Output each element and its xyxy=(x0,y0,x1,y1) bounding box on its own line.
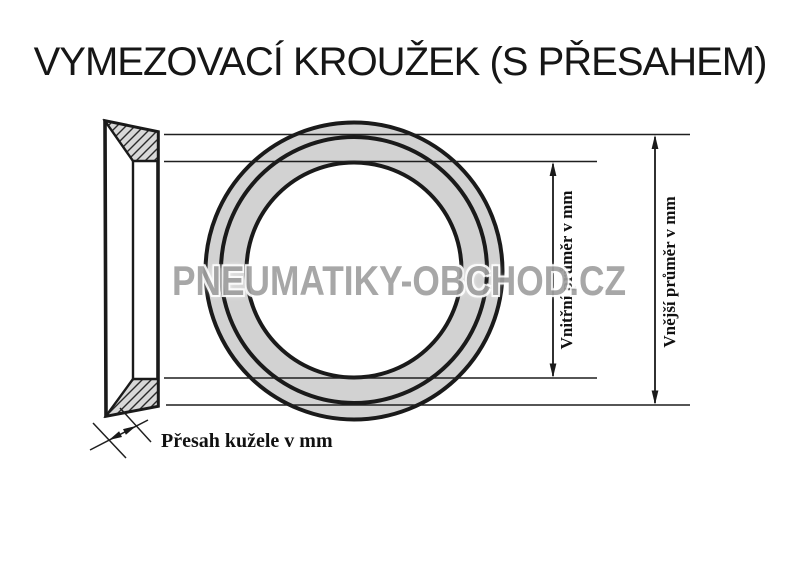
cone-extension-line-upper xyxy=(120,408,151,442)
cone-overlap-label: Přesah kužele v mm xyxy=(161,430,333,453)
arrowhead-down-icon xyxy=(550,364,557,378)
arrowhead-upright-icon xyxy=(123,426,136,435)
page-title: VYMEZOVACÍ KROUŽEK (S PŘESAHEM) xyxy=(0,40,800,84)
outer-diameter-label: Vnější průměr v mm xyxy=(660,196,680,347)
outer-diameter-dimension xyxy=(652,135,659,405)
spacer-ring-diagram: VYMEZOVACÍ KROUŽEK (S PŘESAHEM) Vnitřní … xyxy=(0,0,800,572)
ring-cross-section xyxy=(105,121,158,416)
cone-overlap-dimension xyxy=(90,408,151,458)
arrowhead-up-icon xyxy=(550,162,557,176)
arrowhead-up-icon xyxy=(652,135,659,149)
arrowhead-down-icon xyxy=(652,391,659,405)
watermark: PNEUMATIKY-OBCHOD.CZ xyxy=(172,257,626,305)
section-outline xyxy=(105,121,158,416)
arrowhead-downleft-icon xyxy=(109,431,122,440)
